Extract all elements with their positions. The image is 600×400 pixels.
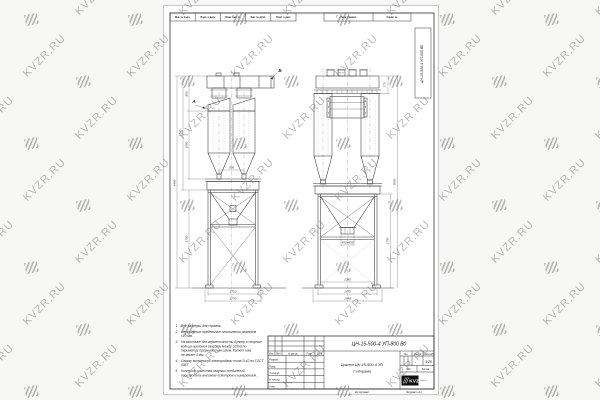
watermark-text: KVZR.RU bbox=[437, 32, 485, 80]
dim-label: 1470 bbox=[344, 290, 351, 294]
dim-label: 4460 bbox=[173, 179, 177, 186]
format-label: Формат А3 bbox=[406, 390, 422, 394]
watermark-text: KVZR.RU bbox=[541, 156, 589, 204]
watermark-text: KVZR.RU bbox=[593, 218, 600, 266]
watermark-text: KVZR.RU bbox=[489, 94, 537, 142]
watermark-logo-icon bbox=[76, 199, 91, 212]
watermark-logo-icon bbox=[24, 137, 39, 150]
stamp-cell-label: Подп. и дата bbox=[201, 17, 216, 19]
note-number: 2. bbox=[175, 330, 179, 334]
drawing-sheet: Инв. № подл. Подп. и дата Взам. инв. № И… bbox=[163, 5, 439, 395]
watermark-logo-icon bbox=[24, 261, 39, 274]
dim-label: 500 bbox=[229, 165, 234, 169]
dim-label: 3005 bbox=[393, 178, 397, 185]
stamp-cell-label: Справ. № bbox=[387, 16, 398, 19]
dim-label: 175 bbox=[383, 82, 387, 87]
note-line: производить внешним осмотром и измерение… bbox=[181, 373, 257, 377]
tb-row-label: Разраб. bbox=[269, 358, 279, 362]
dim-label: 885 bbox=[185, 91, 189, 96]
watermark-logo-icon bbox=[440, 13, 455, 26]
watermark-text: KVZR.RU bbox=[0, 94, 16, 142]
dim-label: 1750 bbox=[185, 235, 189, 242]
note-number: 1. bbox=[176, 324, 179, 328]
view-label-a: А bbox=[191, 99, 195, 104]
note-line: 9467. bbox=[181, 363, 189, 367]
side-view bbox=[302, 66, 394, 302]
watermark-logo-icon bbox=[544, 13, 559, 26]
watermark-logo-icon bbox=[492, 323, 507, 336]
tb-col-header: Дата bbox=[317, 354, 323, 356]
title-name-line1: Циклон ЦН-15-500-4 УП bbox=[341, 363, 384, 367]
tb-col-header: Подп. bbox=[306, 354, 312, 356]
top-stamp-cells: Инв. № подл. Подп. и дата Взам. инв. № И… bbox=[170, 13, 411, 21]
watermark-text: KVZR.RU bbox=[73, 342, 121, 390]
front-view bbox=[192, 70, 286, 302]
tb-mass-label: Масса bbox=[414, 354, 422, 356]
watermark-logo-icon bbox=[128, 385, 143, 398]
dim-label: 450×450 bbox=[342, 241, 354, 245]
dim-label: 1710 bbox=[230, 290, 237, 294]
watermark-text: KVZR.RU bbox=[21, 32, 69, 80]
dim-label: 1750 bbox=[386, 237, 390, 244]
watermark-logo-icon bbox=[24, 385, 39, 398]
tb-sheets-label: Листов bbox=[422, 369, 430, 371]
side-designation-text: ЦН-15-500-4 УП-800 В0 bbox=[420, 45, 424, 83]
watermark-logo-icon bbox=[544, 137, 559, 150]
view-label-b: Б bbox=[278, 68, 282, 73]
dim-label: 1580 bbox=[344, 297, 351, 301]
dim-label: 1080 bbox=[185, 141, 189, 148]
watermark-logo-icon bbox=[544, 261, 559, 274]
note-number: 5. bbox=[176, 369, 179, 373]
stamp-cell-label: Взам. инв. № bbox=[225, 16, 241, 19]
watermark-text: KVZR.RU bbox=[21, 280, 69, 328]
stamp-cell-label: Инв. № дубл. bbox=[251, 16, 267, 19]
watermark-logo-icon bbox=[76, 323, 91, 336]
watermark-logo-icon bbox=[596, 323, 600, 336]
watermark-logo-icon bbox=[76, 75, 91, 88]
watermark-text: KVZR.RU bbox=[489, 0, 537, 18]
dimension-lines: 4460 3180 885 1080 1750 500 1710 1770 17… bbox=[173, 76, 400, 303]
watermark-text: KVZR.RU bbox=[21, 156, 69, 204]
tb-sheet-label: Лист bbox=[406, 369, 412, 371]
note-line: Все размеры для справок. bbox=[181, 324, 221, 328]
watermark-text: KVZR.RU bbox=[437, 280, 485, 328]
note-number: 4. bbox=[176, 359, 179, 363]
watermark-logo-icon bbox=[440, 137, 455, 150]
watermark-logo-icon bbox=[596, 199, 600, 212]
dim-label: 1770 bbox=[230, 297, 237, 301]
watermark-logo-icon bbox=[544, 385, 559, 398]
watermark-text: KVZR.RU bbox=[593, 342, 600, 390]
watermark-text: KVZR.RU bbox=[489, 342, 537, 390]
watermark-logo-icon bbox=[24, 13, 39, 26]
side-designation-box: ЦН-15-500-4 УП-800 В0 bbox=[415, 28, 431, 98]
watermark-logo-icon bbox=[440, 261, 455, 274]
tb-scale-value: 1:25 bbox=[425, 360, 432, 364]
watermark-text: KVZR.RU bbox=[73, 218, 121, 266]
dim-label: 3180 bbox=[179, 129, 183, 136]
watermark-logo-icon bbox=[128, 137, 143, 150]
note-line: не менее 4 мм. bbox=[181, 353, 204, 357]
watermark-text: KVZR.RU bbox=[73, 0, 121, 18]
tb-lit-label: Лит. bbox=[404, 354, 409, 356]
stamp-cell-label: Инв. № подл. bbox=[175, 16, 191, 19]
tb-row-label: Т.контр. bbox=[269, 371, 280, 375]
watermark-text: KVZR.RU bbox=[0, 218, 16, 266]
title-name-line2: с опорами bbox=[353, 370, 372, 374]
title-designation: ЦН-15-500-4 УП-800 В0 bbox=[352, 342, 407, 348]
watermark-logo-icon bbox=[492, 199, 507, 212]
watermark-logo-icon bbox=[128, 261, 143, 274]
note-number: 3. bbox=[176, 340, 179, 344]
dim-label: 1380 bbox=[344, 277, 351, 281]
tb-row-label: Пров. bbox=[269, 364, 276, 368]
kvzr-logo-caption: kvzr.ru bbox=[421, 380, 427, 382]
tb-scale-label: Масштаб bbox=[424, 354, 435, 356]
drawing-linework: Инв. № подл. Подп. и дата Взам. инв. № И… bbox=[164, 6, 438, 394]
copied-label: Копировал bbox=[355, 390, 369, 394]
watermark-text: KVZR.RU bbox=[0, 0, 16, 18]
watermark-logo-icon bbox=[596, 75, 600, 88]
tb-col-header: Изм. bbox=[269, 354, 274, 356]
watermark-text: KVZR.RU bbox=[541, 280, 589, 328]
watermark-text: KVZR.RU bbox=[437, 156, 485, 204]
watermark-logo-icon bbox=[440, 385, 455, 398]
watermark-logo-icon bbox=[128, 13, 143, 26]
tb-row-label: Н.контр. bbox=[269, 378, 280, 382]
watermark-logo-icon bbox=[492, 75, 507, 88]
title-block: ЦН-15-500-4 УП-800 В0 Изм. Лист № докум.… bbox=[268, 336, 434, 394]
watermark-text: KVZR.RU bbox=[489, 218, 537, 266]
watermark-text: KVZR.RU bbox=[0, 342, 16, 390]
watermark-text: KVZR.RU bbox=[593, 94, 600, 142]
tb-col-header: № докум. bbox=[288, 353, 298, 356]
note-line: ±10 мм. bbox=[181, 334, 193, 338]
watermark-text: KVZR.RU bbox=[593, 0, 600, 18]
tb-row-label: Утв. bbox=[269, 384, 275, 388]
stamp-cell-label: Подп. и дата bbox=[276, 17, 291, 19]
stamp-cell-label: Перв. примен. bbox=[340, 17, 357, 19]
watermark-text: KVZR.RU bbox=[541, 32, 589, 80]
notes-block: 1.Все размеры для справок.2.Неуказанные … bbox=[175, 324, 265, 377]
note-line: Сварку выполнять электродами типа Э-42 п… bbox=[181, 359, 264, 363]
watermark-text: KVZR.RU bbox=[73, 94, 121, 142]
page-background: Инв. № подл. Подп. и дата Взам. инв. № И… bbox=[0, 0, 600, 400]
